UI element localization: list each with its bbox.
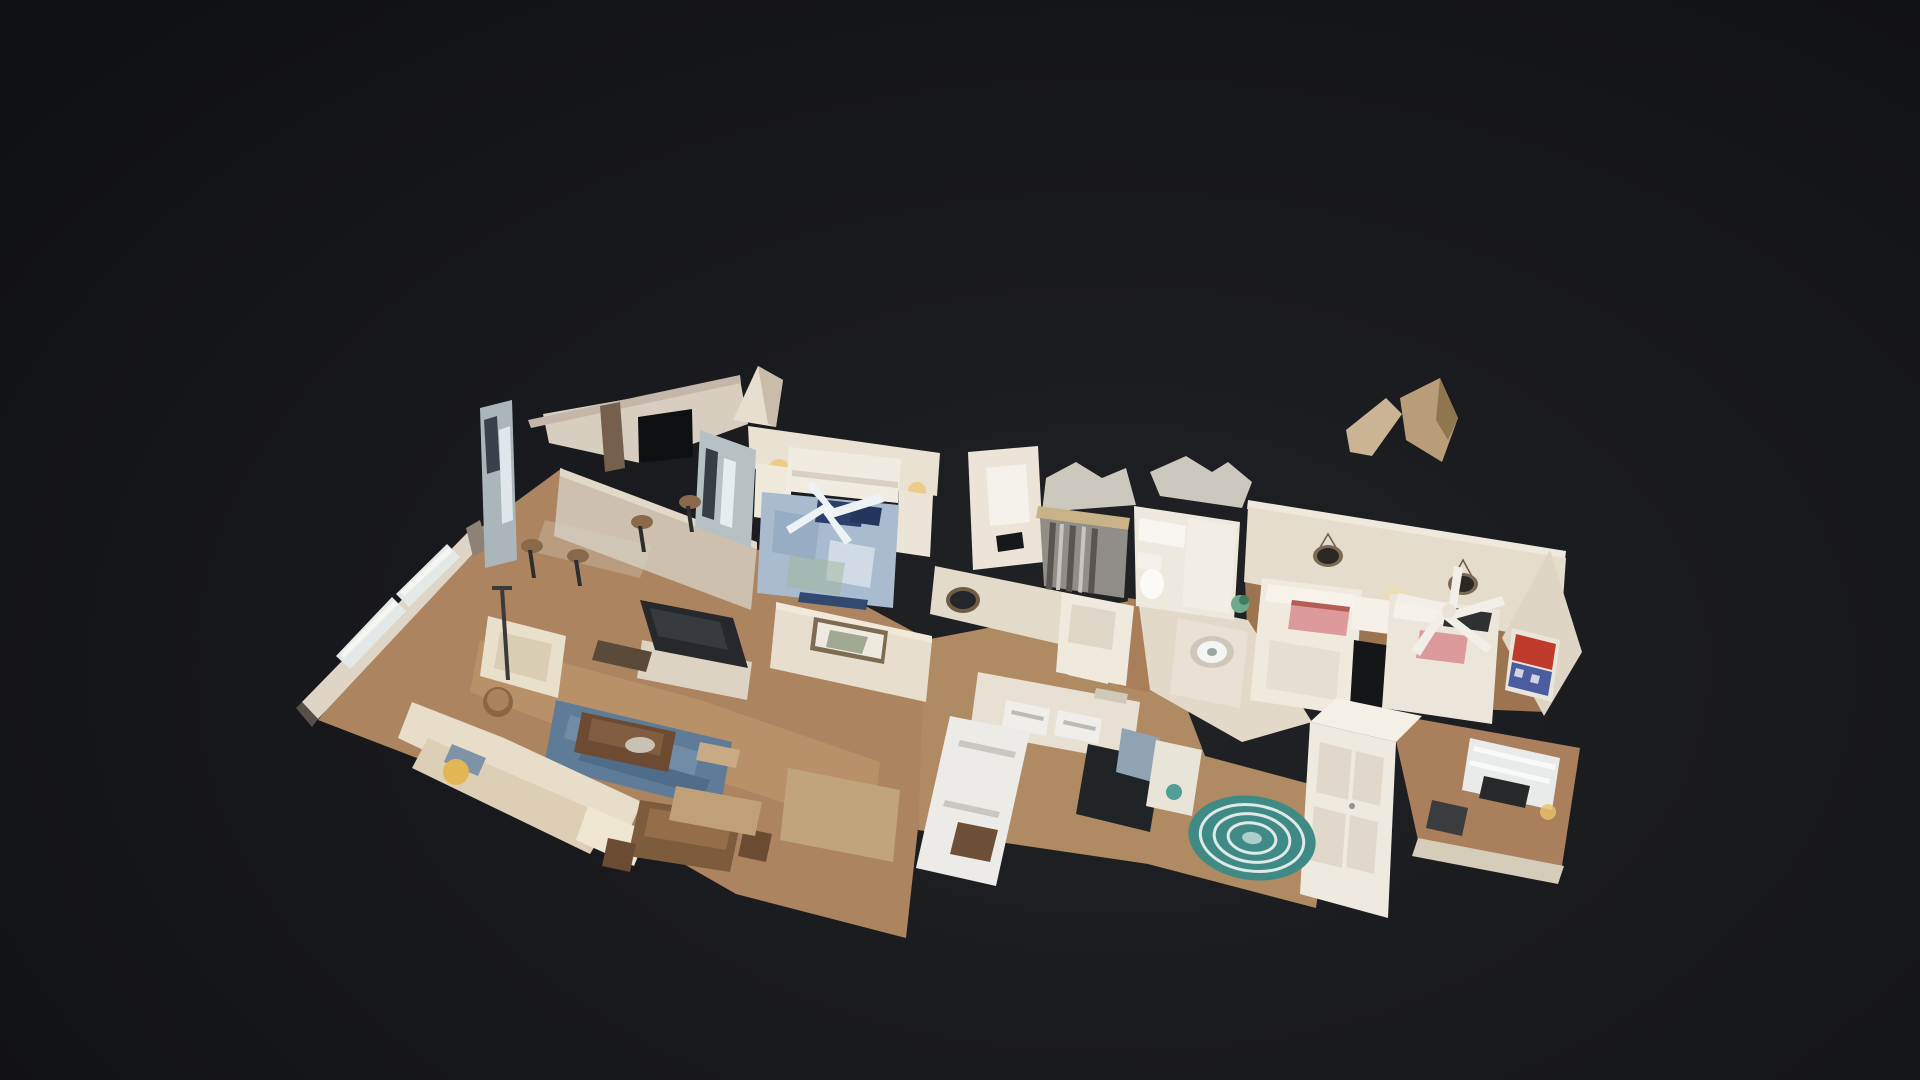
plant-green-dark — [1239, 595, 1249, 605]
laundry-door-panel-2 — [1352, 751, 1384, 806]
nightstand-master-right — [896, 490, 933, 557]
toilet-bowl — [1140, 569, 1164, 599]
ottoman-tray — [625, 737, 655, 753]
viewer-canvas[interactable] — [0, 0, 1920, 1080]
mirror-oval-glass — [950, 591, 976, 609]
laundry-doorknob — [1349, 803, 1355, 809]
dining-chair-bottom-1 — [602, 838, 636, 872]
sink-drain-dark — [1207, 648, 1217, 656]
mirror-round-1-glass — [1317, 548, 1339, 564]
pillow-yellow — [443, 759, 469, 785]
floor-lamp-arm — [492, 586, 512, 590]
bath-tub-band — [1182, 518, 1236, 614]
window-dining-dark — [638, 409, 693, 463]
fan-master-cap — [823, 505, 835, 517]
dollhouse-3d-view — [0, 0, 1920, 1080]
desk-white-kitchen — [1146, 740, 1202, 816]
wall-jagged-top-2 — [1150, 456, 1252, 508]
laundry-door-panel-4 — [1346, 815, 1378, 874]
vanity-master-mirror — [986, 464, 1030, 526]
fan-twin-cap — [1442, 604, 1456, 618]
floating-fragment-left — [1346, 398, 1402, 456]
lamp-glow-br — [1540, 804, 1556, 820]
pot-teal — [1166, 784, 1182, 800]
wall-jagged-top-1 — [1042, 462, 1136, 512]
nightstand-twin — [1351, 596, 1392, 634]
laundry-door-panel-1 — [1316, 742, 1352, 800]
side-table-top — [487, 689, 509, 711]
door-closet-panel — [1068, 604, 1116, 650]
laundry-door-panel-3 — [1310, 806, 1346, 868]
